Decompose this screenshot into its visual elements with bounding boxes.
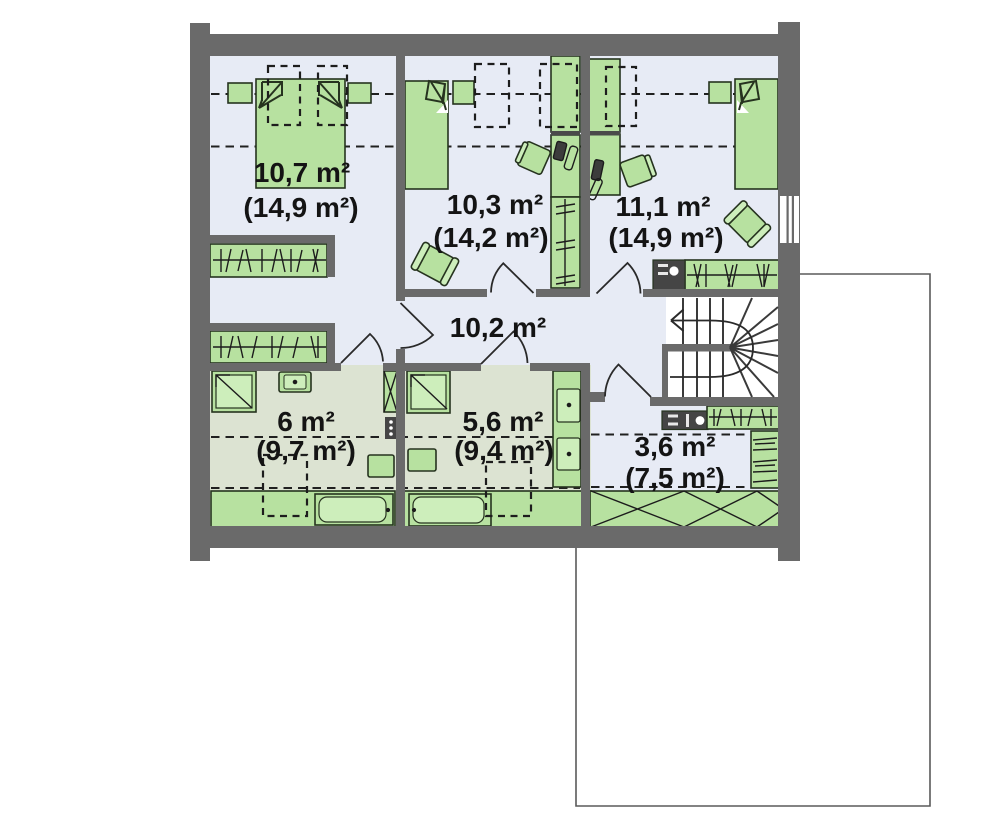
svg-text:10,2 m²: 10,2 m²	[450, 312, 547, 343]
svg-text:(9,4 m²): (9,4 m²)	[454, 435, 554, 466]
svg-text:6 m²: 6 m²	[277, 406, 335, 437]
svg-text:(14,2 m²): (14,2 m²)	[433, 222, 548, 253]
svg-text:(14,9 m²): (14,9 m²)	[608, 222, 723, 253]
svg-text:(9,7 m²): (9,7 m²)	[256, 435, 356, 466]
svg-text:10,7 m²: 10,7 m²	[254, 157, 351, 188]
svg-text:5,6 m²: 5,6 m²	[463, 406, 544, 437]
svg-text:10,3 m²: 10,3 m²	[447, 189, 544, 220]
svg-text:(7,5 m²): (7,5 m²)	[625, 462, 725, 493]
svg-text:11,1 m²: 11,1 m²	[616, 191, 711, 222]
svg-text:3,6 m²: 3,6 m²	[635, 431, 716, 462]
svg-text:(14,9 m²): (14,9 m²)	[243, 192, 358, 223]
